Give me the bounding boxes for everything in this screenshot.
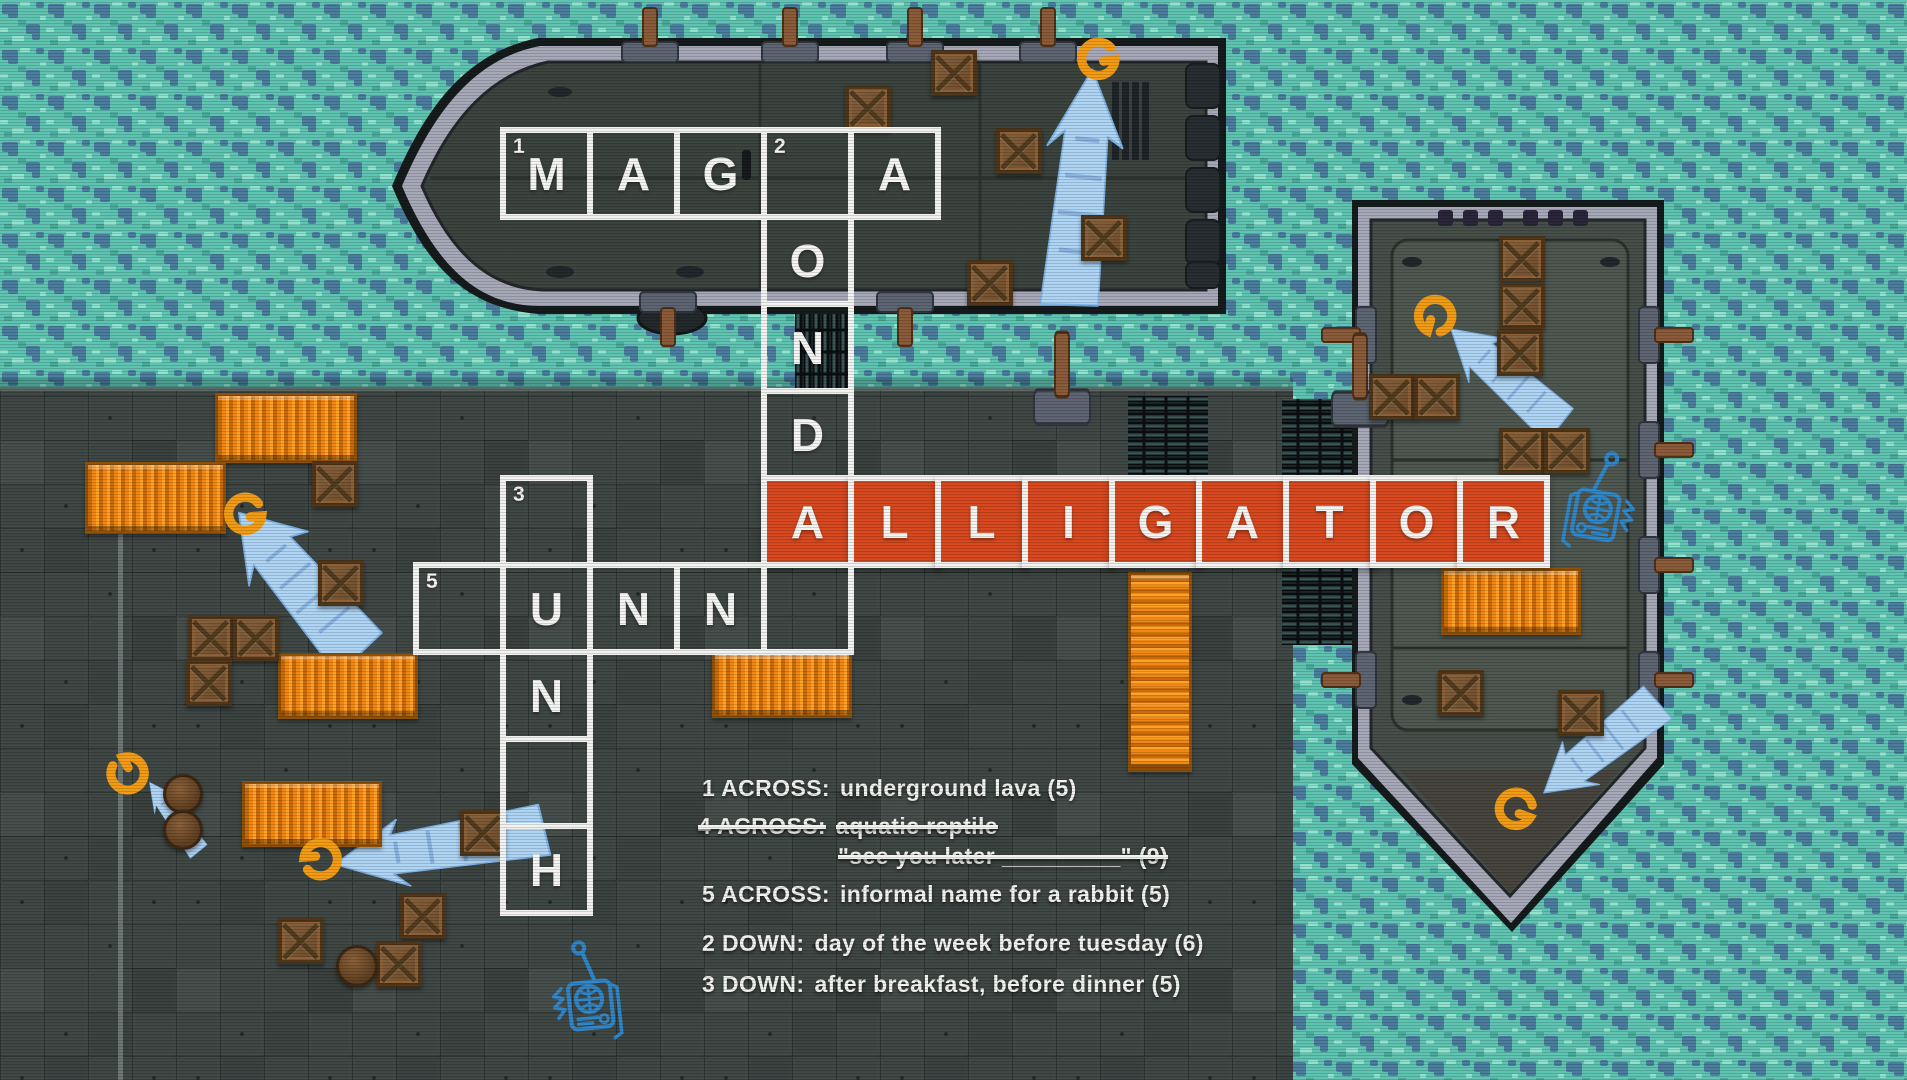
- crossword-cell-n[interactable]: N: [500, 649, 593, 742]
- cell-letter: U: [530, 586, 563, 632]
- cell-letter: D: [791, 412, 824, 458]
- crossword-cell-a[interactable]: A: [1196, 475, 1289, 568]
- crossword-cell-l[interactable]: L: [935, 475, 1028, 568]
- crossword-cell-a[interactable]: A: [848, 127, 941, 220]
- crossword-cell-empty[interactable]: [500, 736, 593, 829]
- cell-letter: A: [878, 151, 911, 197]
- cell-letter: A: [1226, 499, 1259, 545]
- crossword-cell-i[interactable]: I: [1022, 475, 1115, 568]
- cell-number: 1: [513, 136, 525, 157]
- crossword-cell-d[interactable]: D: [761, 388, 854, 481]
- cell-letter: L: [880, 499, 908, 545]
- cell-letter: L: [967, 499, 995, 545]
- cell-letter: N: [791, 325, 824, 371]
- crossword-cell-o[interactable]: O: [761, 214, 854, 307]
- crossword-cell-n[interactable]: N: [761, 301, 854, 394]
- crossword-cell-empty[interactable]: 5: [413, 562, 506, 655]
- cell-letter: I: [1062, 499, 1075, 545]
- cell-number: 3: [513, 484, 525, 505]
- cell-letter: G: [703, 151, 739, 197]
- cell-letter: A: [617, 151, 650, 197]
- crossword-cell-u[interactable]: U: [500, 562, 593, 655]
- cell-letter: N: [617, 586, 650, 632]
- crossword-cell-n[interactable]: N: [674, 562, 767, 655]
- cell-letter: A: [791, 499, 824, 545]
- crossword-cell-h[interactable]: H: [500, 823, 593, 916]
- crossword-cell-empty[interactable]: 3: [500, 475, 593, 568]
- cell-letter: R: [1487, 499, 1520, 545]
- cell-letter: O: [790, 238, 826, 284]
- cell-letter: M: [527, 151, 565, 197]
- cell-number: 2: [774, 136, 786, 157]
- cell-letter: H: [530, 847, 563, 893]
- cell-letter: G: [1138, 499, 1174, 545]
- crossword-cell-empty[interactable]: [761, 562, 854, 655]
- crossword-cell-g[interactable]: G: [1109, 475, 1202, 568]
- crossword-cell-r[interactable]: R: [1457, 475, 1550, 568]
- crossword-board: 1MAG2AOND3ALLIGATOR5UNNNH: [0, 0, 1907, 1080]
- cell-letter: T: [1315, 499, 1343, 545]
- crossword-cell-a[interactable]: A: [761, 475, 854, 568]
- crossword-cell-t[interactable]: T: [1283, 475, 1376, 568]
- cell-letter: N: [704, 586, 737, 632]
- crossword-cell-g[interactable]: G: [674, 127, 767, 220]
- crossword-cell-o[interactable]: O: [1370, 475, 1463, 568]
- crossword-cell-a[interactable]: A: [587, 127, 680, 220]
- game-map: 1MAG2AOND3ALLIGATOR5UNNNH 1 ACROSS:under…: [0, 0, 1907, 1080]
- cell-number: 5: [426, 571, 438, 592]
- cell-letter: O: [1399, 499, 1435, 545]
- crossword-cell-n[interactable]: N: [587, 562, 680, 655]
- crossword-cell-m[interactable]: 1M: [500, 127, 593, 220]
- crossword-cell-l[interactable]: L: [848, 475, 941, 568]
- crossword-cell-empty[interactable]: 2: [761, 127, 854, 220]
- cell-letter: N: [530, 673, 563, 719]
